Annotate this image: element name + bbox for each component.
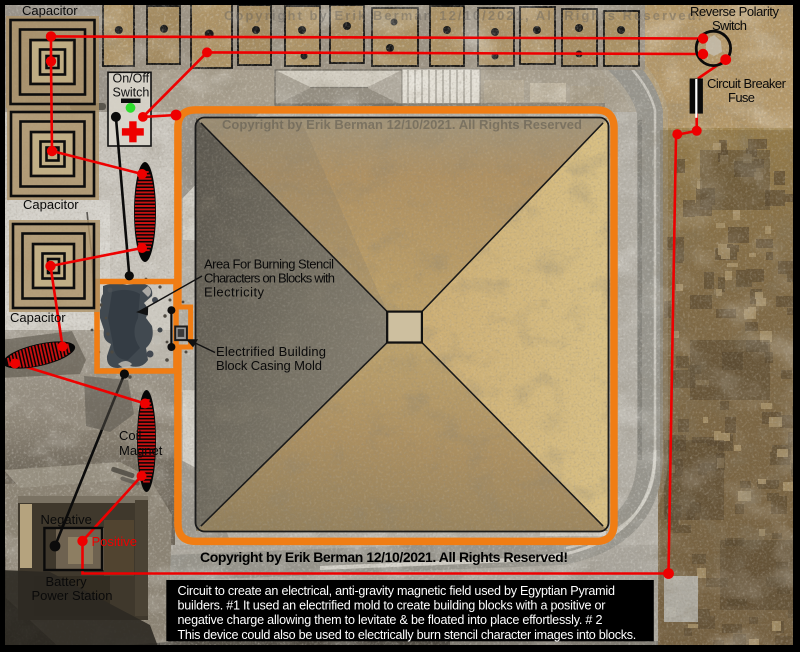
svg-text:negative charge allowing them: negative charge allowing them to levitat… [178,613,603,627]
svg-text:Negative: Negative [41,512,92,527]
svg-text:Capacitor: Capacitor [10,310,66,325]
svg-text:Block Casing Mold: Block Casing Mold [216,358,322,373]
svg-text:On/Off: On/Off [113,72,150,86]
svg-text:Capacitor: Capacitor [23,197,79,212]
svg-text:Power Station: Power Station [32,588,113,603]
svg-text:Coil: Coil [119,428,142,443]
svg-text:Circuit to create an electrica: Circuit to create an electrical, anti-gr… [178,584,616,598]
svg-text:Characters on Blocks with: Characters on Blocks with [204,271,335,286]
svg-text:Copyright by Erik Berman 12/10: Copyright by Erik Berman 12/10/2021. All… [200,549,568,565]
svg-text:Capacitor: Capacitor [22,3,78,18]
svg-text:Circuit Breaker: Circuit Breaker [707,76,787,91]
svg-text:This device could also be used: This device could also be used to electr… [178,628,637,642]
svg-text:Switch: Switch [113,86,150,100]
svg-text:Positive: Positive [92,534,138,549]
svg-text:Electrified Building: Electrified Building [216,344,326,359]
svg-text:Reverse Polarity: Reverse Polarity [690,4,780,19]
svg-text:builders. #1 It used an electr: builders. #1 It used an electrified mold… [178,599,606,613]
svg-text:Fuse: Fuse [728,90,755,105]
svg-text:Electricity: Electricity [204,285,265,300]
svg-text:Magnet: Magnet [119,443,163,458]
svg-text:Switch: Switch [712,18,747,33]
svg-text:Copyright by Erik Berman 12/10: Copyright by Erik Berman 12/10/2021. All… [222,117,582,132]
svg-text:Battery: Battery [46,574,88,589]
svg-text:Area For Burning Stencil: Area For Burning Stencil [204,257,334,272]
